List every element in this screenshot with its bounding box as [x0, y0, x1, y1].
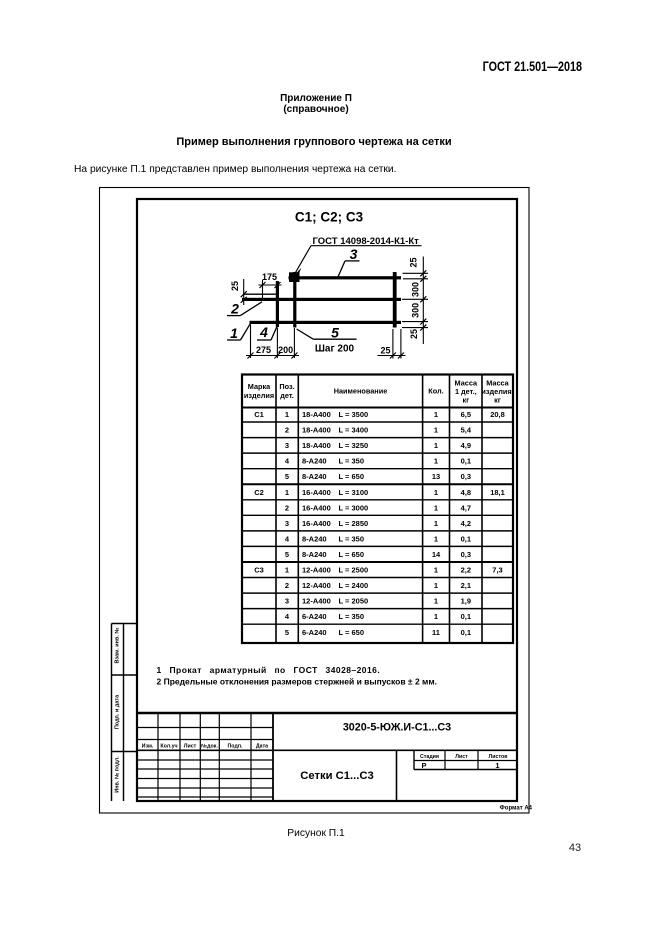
svg-text:7,3: 7,3	[492, 566, 502, 575]
svg-text:дет.: дет.	[280, 391, 294, 400]
svg-text:18-А400: 18-А400	[302, 410, 331, 419]
svg-text:4: 4	[259, 324, 268, 340]
svg-text:кг: кг	[462, 395, 469, 404]
svg-text:Сетки С1...С3: Сетки С1...С3	[300, 770, 374, 782]
svg-text:L = 350: L = 350	[339, 612, 365, 621]
svg-text:L = 650: L = 650	[339, 472, 365, 481]
svg-text:16-А400: 16-А400	[302, 503, 331, 512]
svg-text:25: 25	[409, 257, 419, 267]
svg-text:1: 1	[434, 612, 438, 621]
svg-text:1: 1	[434, 426, 438, 435]
svg-text:1 Прокат арматурный по ГОСТ 34: 1 Прокат арматурный по ГОСТ 34028–2016.	[157, 665, 381, 675]
svg-text:Марка: Марка	[248, 382, 271, 391]
svg-text:Наименование: Наименование	[334, 387, 388, 396]
svg-text:1: 1	[434, 534, 438, 543]
svg-text:8-А240: 8-А240	[302, 550, 327, 559]
svg-text:1: 1	[285, 410, 289, 419]
svg-text:4,9: 4,9	[461, 441, 471, 450]
svg-text:L = 3100: L = 3100	[339, 488, 369, 497]
svg-text:Инв. № подл.: Инв. № подл.	[115, 756, 121, 793]
svg-text:Шаг 200: Шаг 200	[315, 343, 355, 354]
svg-text:13: 13	[432, 472, 440, 481]
svg-text:3020-5-ЮЖ.И-С1...С3: 3020-5-ЮЖ.И-С1...С3	[343, 722, 451, 734]
svg-text:1: 1	[434, 488, 438, 497]
svg-text:4: 4	[285, 612, 290, 621]
svg-text:2,1: 2,1	[461, 581, 471, 590]
svg-text:3: 3	[350, 246, 358, 262]
svg-text:кг: кг	[494, 395, 501, 404]
svg-text:25: 25	[230, 281, 240, 291]
svg-text:175: 175	[262, 272, 277, 282]
svg-text:L = 3250: L = 3250	[339, 441, 369, 450]
svg-text:5,4: 5,4	[461, 426, 472, 435]
svg-text:3: 3	[285, 519, 289, 528]
svg-text:2,2: 2,2	[461, 566, 471, 575]
svg-text:300: 300	[410, 282, 420, 297]
svg-text:3: 3	[285, 441, 289, 450]
svg-text:18-А400: 18-А400	[302, 441, 331, 450]
svg-text:1: 1	[434, 519, 438, 528]
svg-text:№док.: №док.	[201, 743, 218, 749]
svg-text:12-А400: 12-А400	[302, 597, 331, 606]
svg-text:Формат А4: Формат А4	[500, 806, 533, 812]
svg-text:5: 5	[285, 628, 289, 637]
svg-text:Взам. инв. №: Взам. инв. №	[115, 627, 121, 663]
svg-text:12-А400: 12-А400	[302, 581, 331, 590]
svg-text:Кол.уч: Кол.уч	[160, 743, 177, 749]
svg-text:Поз.: Поз.	[279, 382, 294, 391]
svg-text:Стадия: Стадия	[420, 754, 439, 760]
svg-text:1: 1	[434, 503, 438, 512]
svg-text:Дата: Дата	[256, 743, 268, 749]
svg-text:300: 300	[410, 303, 420, 318]
svg-text:25: 25	[380, 345, 390, 355]
svg-text:16-А400: 16-А400	[302, 488, 331, 497]
svg-text:20,8: 20,8	[490, 410, 505, 419]
svg-text:1,9: 1,9	[461, 597, 471, 606]
svg-text:1: 1	[285, 566, 289, 575]
svg-text:0,1: 0,1	[461, 612, 471, 621]
svg-text:Подп.: Подп.	[227, 743, 243, 749]
svg-text:4,7: 4,7	[461, 503, 471, 512]
svg-text:Изм.: Изм.	[142, 743, 154, 749]
svg-text:С2: С2	[254, 488, 264, 497]
svg-text:Листов: Листов	[489, 754, 509, 760]
svg-text:4: 4	[285, 457, 290, 466]
svg-text:изделия: изделия	[244, 391, 274, 400]
svg-text:11: 11	[432, 628, 440, 637]
svg-text:1: 1	[434, 441, 438, 450]
svg-text:1: 1	[434, 597, 438, 606]
svg-text:4,2: 4,2	[461, 519, 471, 528]
svg-text:1: 1	[434, 566, 438, 575]
svg-text:2: 2	[285, 503, 289, 512]
svg-text:Лист: Лист	[455, 754, 468, 760]
svg-text:8-А240: 8-А240	[302, 534, 327, 543]
svg-text:С3: С3	[254, 566, 264, 575]
svg-text:200: 200	[278, 345, 293, 355]
svg-text:2 Предельные отклонения размер: 2 Предельные отклонения размеров стержне…	[157, 677, 438, 687]
svg-text:0,3: 0,3	[461, 472, 471, 481]
svg-text:4,8: 4,8	[461, 488, 471, 497]
svg-text:5: 5	[285, 472, 289, 481]
svg-text:0,1: 0,1	[461, 628, 471, 637]
svg-text:2: 2	[285, 581, 289, 590]
svg-text:5: 5	[331, 325, 339, 341]
svg-text:1: 1	[434, 457, 438, 466]
svg-text:L = 350: L = 350	[339, 534, 365, 543]
svg-text:L = 650: L = 650	[339, 628, 365, 637]
svg-text:1: 1	[230, 325, 238, 341]
svg-text:L = 2850: L = 2850	[339, 519, 369, 528]
svg-text:L = 650: L = 650	[339, 550, 365, 559]
svg-text:8-А240: 8-А240	[302, 457, 327, 466]
svg-text:Кол.: Кол.	[428, 387, 443, 396]
svg-text:Р: Р	[421, 761, 426, 770]
svg-text:С1; С2; С3: С1; С2; С3	[295, 210, 364, 225]
svg-text:6-А240: 6-А240	[302, 628, 327, 637]
svg-text:25: 25	[409, 329, 419, 339]
svg-text:275: 275	[256, 345, 271, 355]
svg-text:1: 1	[285, 488, 289, 497]
svg-text:0,1: 0,1	[461, 457, 471, 466]
svg-text:L = 2400: L = 2400	[339, 581, 369, 590]
svg-text:2: 2	[230, 301, 239, 317]
svg-text:2: 2	[285, 426, 289, 435]
svg-text:16-А400: 16-А400	[302, 519, 331, 528]
svg-text:1: 1	[495, 761, 499, 770]
svg-text:L = 350: L = 350	[339, 457, 365, 466]
svg-text:Лист: Лист	[184, 743, 197, 749]
svg-text:L = 2500: L = 2500	[339, 566, 369, 575]
svg-text:18,1: 18,1	[490, 488, 505, 497]
svg-text:L = 3000: L = 3000	[339, 503, 369, 512]
svg-text:14: 14	[432, 550, 441, 559]
svg-text:12-А400: 12-А400	[302, 566, 331, 575]
svg-text:Подп. и дата: Подп. и дата	[115, 694, 121, 729]
svg-text:8-А240: 8-А240	[302, 472, 327, 481]
svg-text:0,1: 0,1	[461, 534, 471, 543]
svg-text:L = 3500: L = 3500	[339, 410, 369, 419]
svg-text:6,5: 6,5	[461, 410, 471, 419]
svg-text:1: 1	[434, 410, 438, 419]
svg-text:3: 3	[285, 597, 289, 606]
svg-text:С1: С1	[254, 410, 264, 419]
svg-text:0,3: 0,3	[461, 550, 471, 559]
svg-text:1: 1	[434, 581, 438, 590]
svg-text:18-А400: 18-А400	[302, 426, 331, 435]
svg-text:L = 2050: L = 2050	[339, 597, 369, 606]
svg-text:6-А240: 6-А240	[302, 612, 327, 621]
svg-text:4: 4	[285, 534, 290, 543]
svg-text:5: 5	[285, 550, 289, 559]
svg-text:L = 3400: L = 3400	[339, 426, 369, 435]
